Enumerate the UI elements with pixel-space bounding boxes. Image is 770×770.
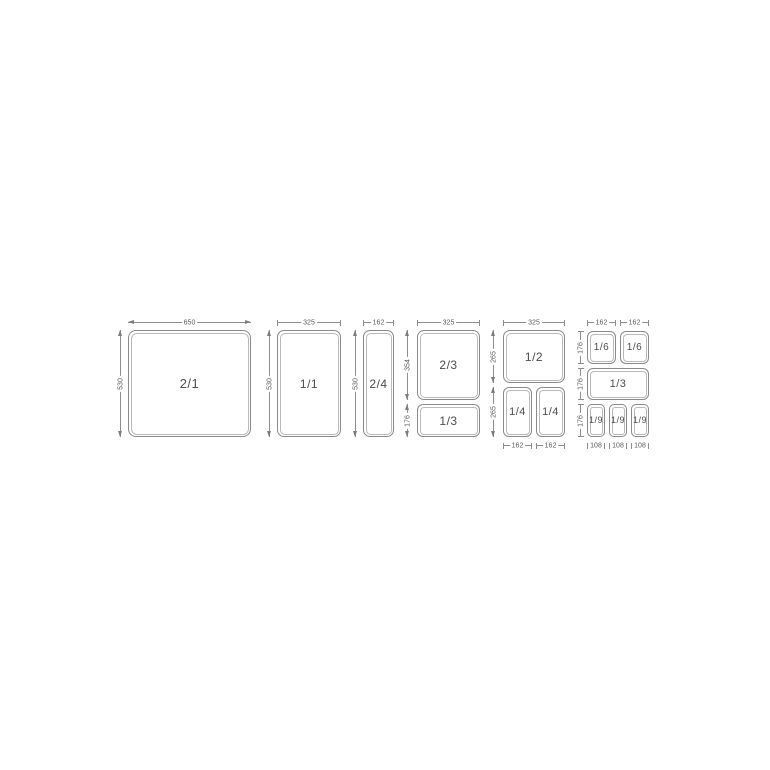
pan-size-label: 1/3 bbox=[439, 415, 457, 427]
dim-left-col6-row1: 176 bbox=[577, 331, 584, 364]
dim-label: 108 bbox=[588, 442, 604, 449]
dim-left-col2: 530 bbox=[266, 330, 273, 437]
pan-size-label: 1/6 bbox=[594, 343, 609, 353]
dim-left-col4-lower: 176 bbox=[404, 404, 411, 437]
pan-size-label: 1/9 bbox=[633, 416, 647, 425]
pan-1-1: 1/1 bbox=[277, 330, 341, 437]
pan-1-4-left: 1/4 bbox=[503, 387, 532, 437]
dim-top-col4: 325 bbox=[417, 319, 480, 326]
dim-top-col5: 325 bbox=[503, 319, 565, 326]
dim-left-col4-upper: 354 bbox=[404, 330, 411, 400]
dim-label: 265 bbox=[490, 404, 497, 420]
dim-label: 265 bbox=[490, 349, 497, 365]
dim-bottom-col5-left: 162 bbox=[503, 442, 532, 449]
dim-left-col6-row3: 176 bbox=[577, 404, 584, 437]
dim-left-col5-upper: 265 bbox=[490, 330, 497, 383]
dim-label: 325 bbox=[441, 319, 457, 326]
dim-left-col5-lower: 265 bbox=[490, 387, 497, 437]
pan-1-9-a: 1/9 bbox=[587, 404, 605, 437]
pan-size-label: 1/2 bbox=[525, 351, 543, 363]
dim-label: 530 bbox=[266, 376, 273, 392]
dim-label: 176 bbox=[577, 376, 584, 392]
dim-bottom-col5-right: 162 bbox=[536, 442, 565, 449]
dim-label: 325 bbox=[526, 319, 542, 326]
pan-1-3-wide: 1/3 bbox=[587, 368, 649, 400]
pan-size-label: 1/3 bbox=[610, 379, 627, 390]
pan-1-6-right: 1/6 bbox=[620, 331, 649, 364]
dim-label: 530 bbox=[352, 376, 359, 392]
dim-top-col3: 162 bbox=[363, 319, 394, 326]
dim-left-col1: 530 bbox=[117, 330, 124, 437]
dim-left-col6-row2: 176 bbox=[577, 368, 584, 400]
pan-size-label: 1/9 bbox=[589, 416, 603, 425]
dim-bottom-col6-c: 108 bbox=[631, 442, 649, 449]
pan-size-label: 2/1 bbox=[180, 377, 200, 390]
dim-label: 162 bbox=[543, 442, 559, 449]
pan-size-label: 2/3 bbox=[439, 359, 457, 371]
pan-1-6-left: 1/6 bbox=[587, 331, 616, 364]
pan-size-label: 1/4 bbox=[509, 407, 526, 418]
dim-top-col2: 325 bbox=[277, 319, 341, 326]
dim-label: 162 bbox=[510, 442, 526, 449]
dim-left-col3: 530 bbox=[352, 330, 359, 437]
dim-label: 162 bbox=[594, 319, 610, 326]
dim-label: 162 bbox=[371, 319, 387, 326]
pan-2-4: 2/4 bbox=[363, 330, 394, 437]
dim-label: 325 bbox=[301, 319, 317, 326]
dim-label: 176 bbox=[577, 413, 584, 429]
pan-1-3: 1/3 bbox=[417, 404, 480, 437]
pan-1-2: 1/2 bbox=[503, 330, 565, 383]
pan-2-1: 2/1 bbox=[128, 330, 251, 437]
dim-label: 162 bbox=[627, 319, 643, 326]
dim-label: 650 bbox=[182, 319, 198, 326]
dim-label: 108 bbox=[610, 442, 626, 449]
dim-label: 108 bbox=[632, 442, 648, 449]
dim-label: 176 bbox=[577, 340, 584, 356]
pan-1-9-c: 1/9 bbox=[631, 404, 649, 437]
pan-2-3: 2/3 bbox=[417, 330, 480, 400]
pan-size-label: 1/4 bbox=[542, 407, 559, 418]
dim-top-col6-right: 162 bbox=[620, 319, 649, 326]
pan-1-4-right: 1/4 bbox=[536, 387, 565, 437]
pan-size-label: 1/1 bbox=[300, 378, 318, 390]
dim-label: 176 bbox=[404, 413, 411, 429]
dim-bottom-col6-a: 108 bbox=[587, 442, 605, 449]
pan-size-label: 1/6 bbox=[627, 343, 642, 353]
dim-top-col1: 650 bbox=[128, 319, 251, 326]
dim-bottom-col6-b: 108 bbox=[609, 442, 627, 449]
pan-size-label: 2/4 bbox=[369, 378, 387, 390]
pan-size-label: 1/9 bbox=[611, 416, 625, 425]
pan-1-9-b: 1/9 bbox=[609, 404, 627, 437]
dim-top-col6-left: 162 bbox=[587, 319, 616, 326]
dim-label: 530 bbox=[117, 376, 124, 392]
dim-label: 354 bbox=[404, 357, 411, 373]
gastronorm-size-diagram: 650 530 2/1 325 530 1/1 162 530 2/4 325 … bbox=[0, 0, 770, 770]
